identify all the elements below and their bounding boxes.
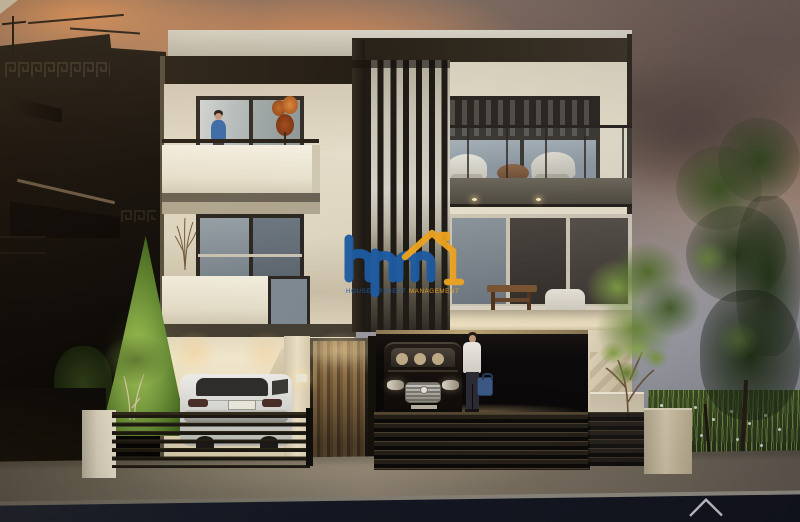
glass-railing bbox=[426, 128, 632, 178]
under-balcony-shadow bbox=[162, 193, 320, 202]
tree-highlight bbox=[688, 240, 728, 276]
taillight bbox=[188, 399, 208, 407]
bench-shelf bbox=[495, 298, 529, 302]
railing-post bbox=[545, 126, 547, 178]
gate-downlight-glow bbox=[306, 330, 372, 370]
window-mullion bbox=[198, 254, 302, 257]
architectural-render-scene: HOUSE PROJECT MANAGEMENT bbox=[0, 0, 800, 522]
garden-tree-foliage bbox=[640, 280, 700, 336]
recessed-light bbox=[536, 198, 541, 201]
balcony-rail bbox=[0, 236, 46, 238]
dry-plant bbox=[172, 212, 198, 270]
horizontal-slat-fence bbox=[588, 412, 646, 466]
white-fence-pillar bbox=[644, 408, 692, 474]
greek-key-frieze bbox=[4, 58, 110, 82]
tree-highlight bbox=[716, 320, 760, 360]
woman-figure-head bbox=[215, 113, 222, 120]
railing-post bbox=[622, 126, 624, 178]
recessed-light bbox=[472, 198, 477, 201]
man-figure-white-shirt bbox=[463, 342, 481, 373]
watermark-tagline-left: HOUSE PROJECT bbox=[346, 288, 406, 295]
large-tree-canopy bbox=[718, 118, 800, 202]
road-watermark-roof-outline bbox=[688, 495, 724, 518]
balcony-plant-orange bbox=[282, 96, 298, 114]
parapet-corner-shade bbox=[312, 145, 320, 193]
wall-light-fixture bbox=[296, 374, 307, 382]
sapling-canopy bbox=[104, 336, 168, 384]
balcony-rail bbox=[162, 139, 319, 143]
headlight bbox=[387, 380, 404, 390]
fence-post bbox=[306, 408, 313, 466]
taillight bbox=[262, 399, 282, 407]
car-seat bbox=[396, 353, 408, 365]
balcony-parapet-top-left bbox=[162, 145, 320, 195]
license-plate bbox=[228, 400, 256, 410]
sedan-hood-line bbox=[388, 370, 458, 372]
balcony-slab-top-right bbox=[422, 178, 632, 207]
svg-text:HOUSE PROJECT MANAGEMENT: HOUSE PROJECT MANAGEMENT bbox=[346, 288, 459, 295]
roof-fascia-left bbox=[162, 56, 354, 84]
car-seat bbox=[432, 353, 444, 365]
glass-door bbox=[268, 276, 310, 328]
white-fence-pillar bbox=[82, 410, 116, 478]
watermark-tagline-right: MANAGEMENT bbox=[409, 288, 459, 295]
headlight bbox=[442, 380, 459, 390]
briefcase-handle bbox=[482, 373, 493, 380]
balcony-rail bbox=[0, 252, 46, 254]
carport-lintel-light bbox=[376, 330, 590, 334]
greek-key-frieze-small bbox=[120, 206, 156, 222]
railing-post bbox=[584, 126, 586, 178]
horizontal-slat-fence bbox=[112, 414, 310, 468]
tree-foliage bbox=[612, 362, 640, 384]
sedan-rear-window bbox=[196, 378, 268, 396]
woman-figure-blue-top bbox=[211, 120, 226, 141]
railing-post bbox=[506, 126, 508, 178]
horizontal-slat-gate bbox=[374, 414, 590, 470]
slat-top-shadow bbox=[352, 60, 450, 68]
sedan-side-window bbox=[272, 379, 288, 395]
hpm-watermark-logo: HOUSE PROJECT MANAGEMENT bbox=[333, 220, 475, 300]
car-emblem bbox=[420, 386, 428, 394]
car-seat bbox=[414, 353, 426, 365]
man-figure-leg-gap bbox=[472, 384, 473, 410]
railing-post bbox=[467, 126, 469, 178]
wooden-bench bbox=[487, 285, 537, 292]
